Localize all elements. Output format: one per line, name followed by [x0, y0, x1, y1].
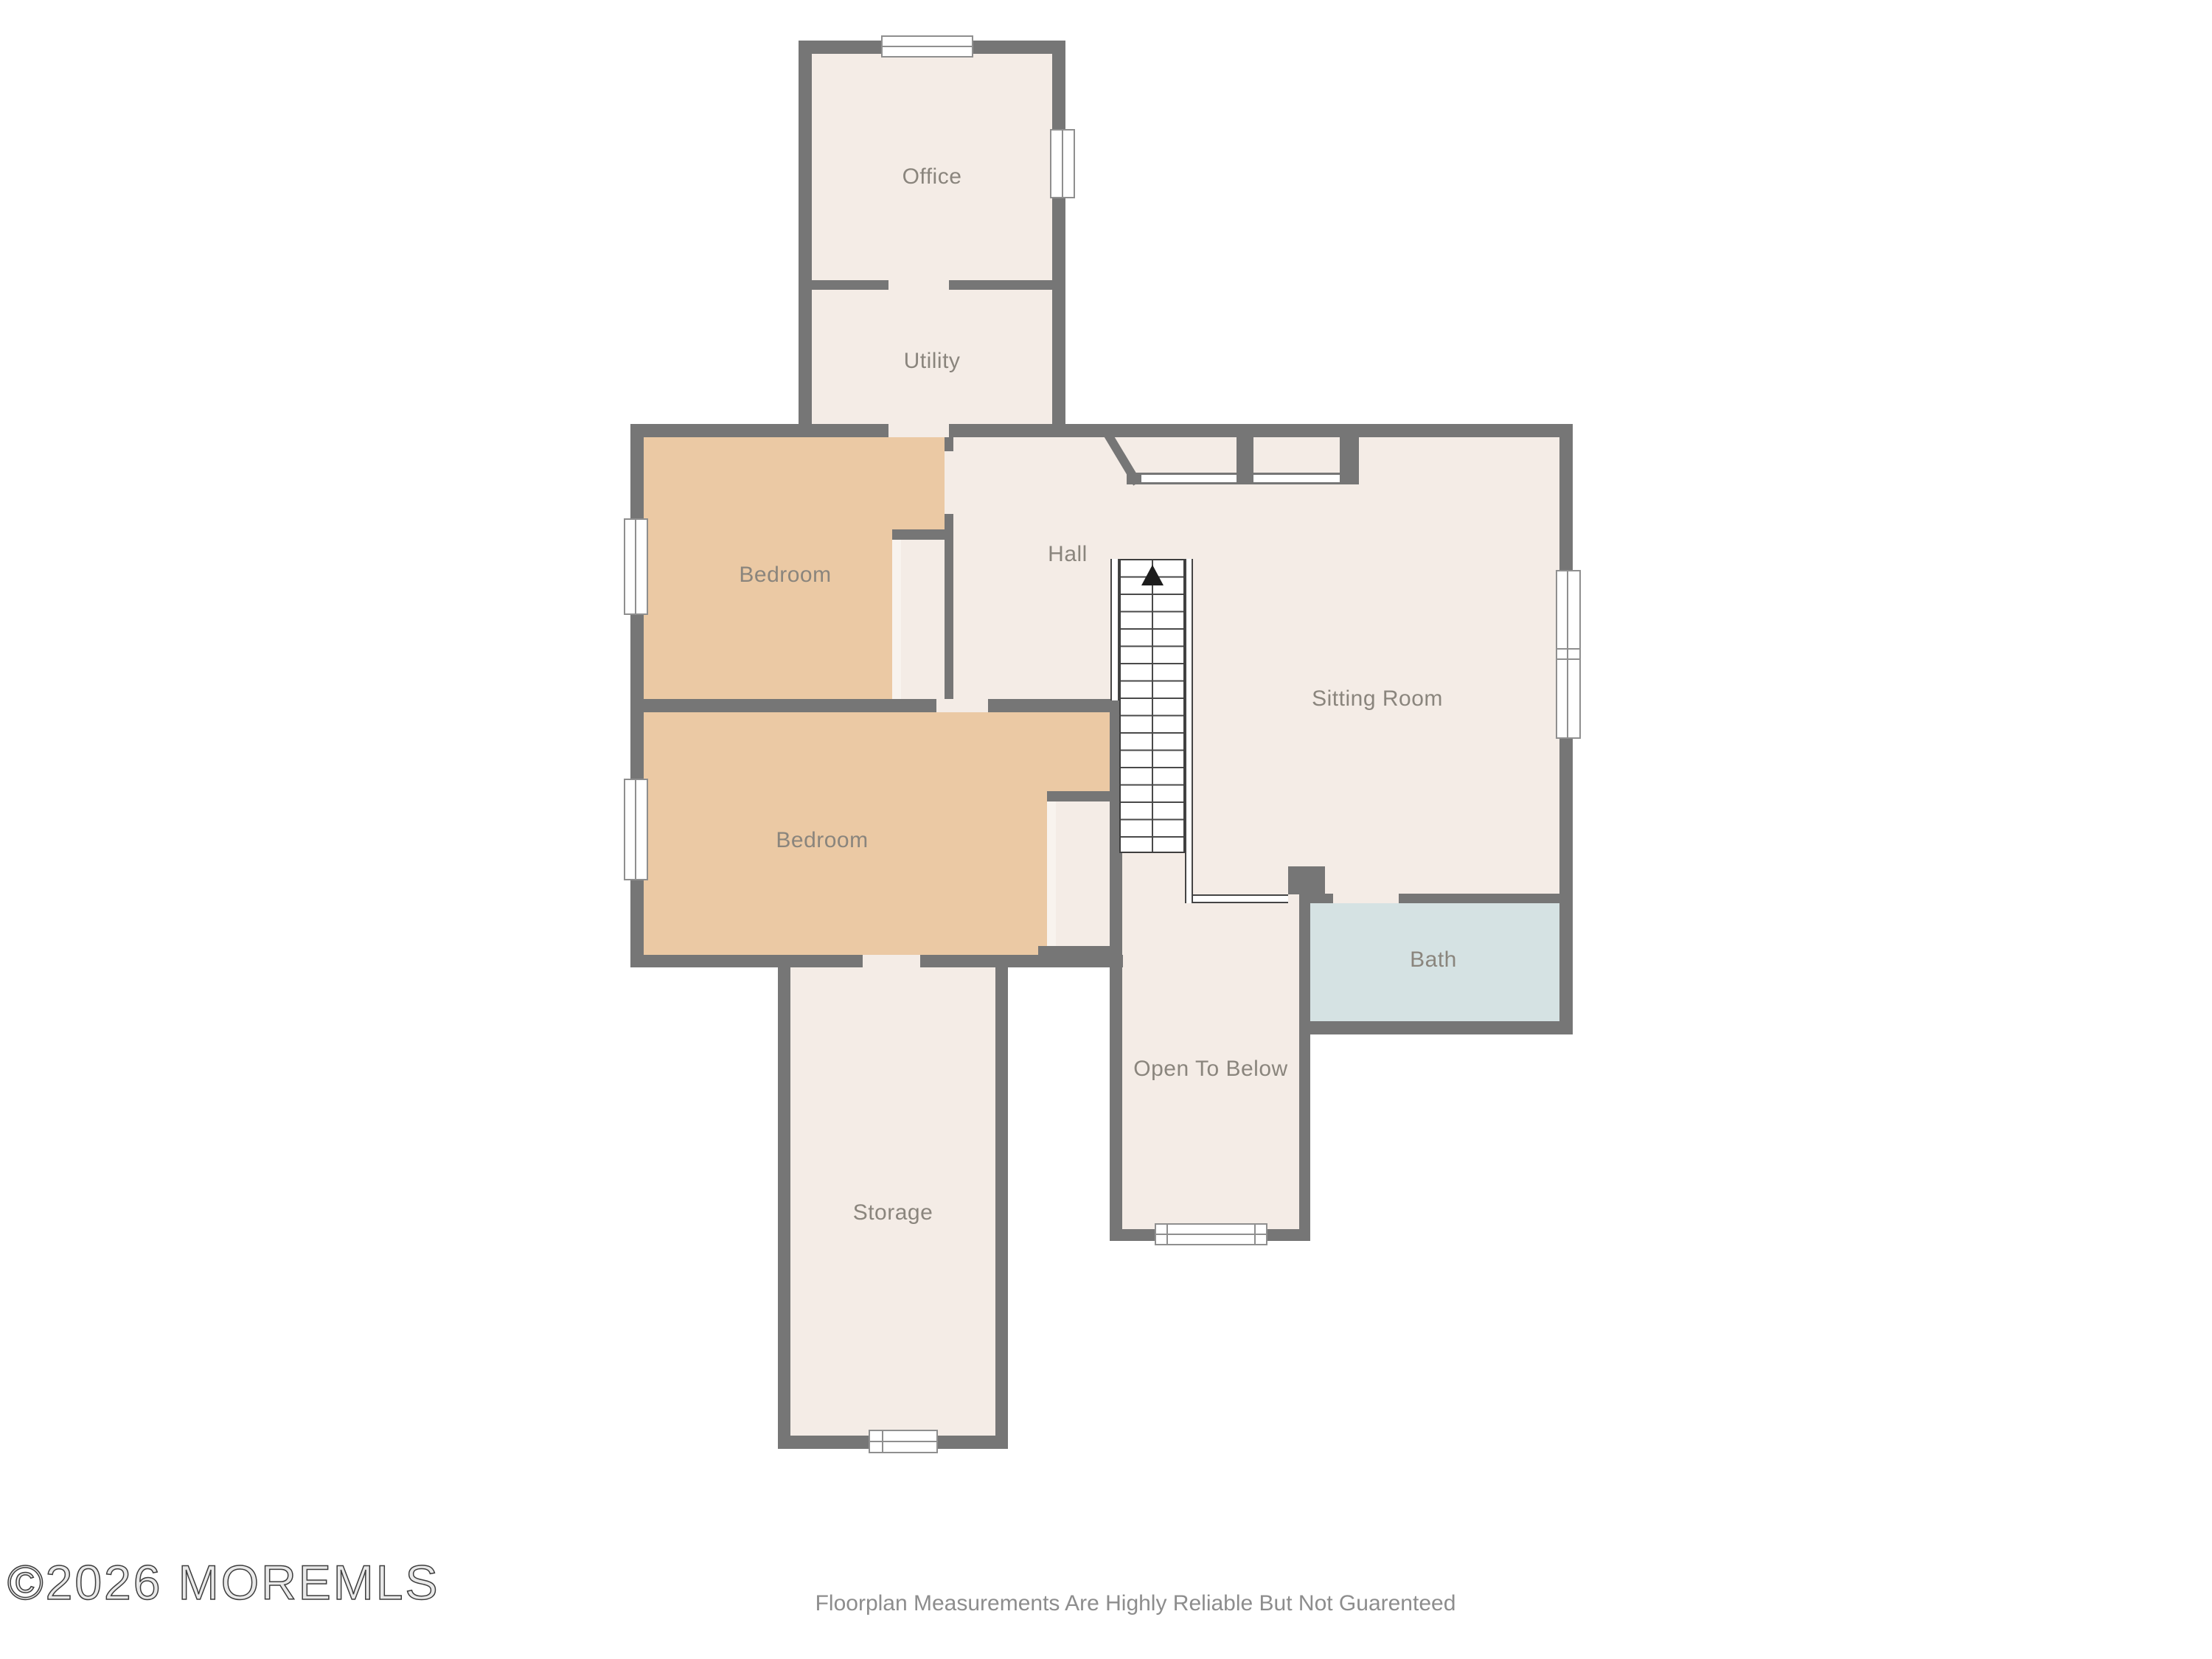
wall-bath-bottom	[1299, 1021, 1573, 1034]
window-frame-line	[635, 520, 636, 613]
half-wall-opening-left	[1141, 473, 1237, 484]
wall-closet1-top	[892, 529, 953, 540]
wall-bedroom1-hall-b	[945, 514, 953, 699]
bedroom1-door-opening	[945, 451, 953, 514]
room-label-bedroom1: Bedroom	[739, 563, 831, 588]
window-frame-line	[1156, 1234, 1266, 1235]
stair-direction-line	[1152, 560, 1153, 852]
wall-office-right-b	[1052, 198, 1065, 437]
bedroom2-nook-floor	[1047, 712, 1110, 791]
wall-sill-pier	[1237, 437, 1253, 484]
closet2-floor	[1056, 801, 1110, 946]
room-label-utility: Utility	[904, 349, 961, 374]
room-label-sitting-room: Sitting Room	[1312, 686, 1443, 712]
wall-bedroom1-hall-a	[945, 437, 953, 451]
wall-office-utility-divider-b	[949, 280, 1052, 290]
stair-left-rail	[1110, 559, 1119, 700]
wall-office-left	[799, 41, 812, 437]
window-bedroom2	[624, 779, 648, 880]
window-frame-line	[1062, 131, 1063, 197]
wall-open-to-below-right	[1299, 894, 1310, 1241]
closet1-floor	[901, 540, 945, 699]
stair-right-rail	[1185, 559, 1193, 903]
room-label-open-to-below: Open To Below	[1133, 1057, 1287, 1082]
wall-storage-bottom-a	[778, 1436, 869, 1449]
room-label-bedroom2: Bedroom	[776, 828, 868, 853]
stair-up-arrow-icon	[1141, 565, 1164, 585]
wall-bedroom-divider-b	[988, 699, 1119, 712]
window-office-right	[1050, 129, 1075, 198]
office-utility-floor	[812, 54, 1052, 437]
wall-storage-left	[778, 967, 790, 1449]
wall-main-left-b	[630, 613, 644, 780]
wall-landing-pier	[1288, 866, 1325, 894]
room-label-hall: Hall	[1048, 542, 1088, 567]
bedroom2-door-opening	[936, 699, 988, 712]
wall-open-to-below-bottom-b	[1267, 1229, 1310, 1241]
wall-bedroom-divider-a	[630, 699, 936, 712]
staircase	[1119, 559, 1185, 853]
disclaimer-text: Floorplan Measurements Are Highly Reliab…	[811, 1591, 1460, 1616]
wall-storage-right	[995, 967, 1008, 1449]
window-frame-line	[1254, 1225, 1256, 1244]
window-open-to-below	[1155, 1223, 1267, 1245]
room-label-bath: Bath	[1410, 947, 1457, 973]
wall-sill-cap-right	[1340, 437, 1359, 484]
wall-main-top-a	[630, 424, 888, 437]
wall-main-bottom-b	[920, 955, 1123, 967]
window-bedroom1	[624, 518, 648, 615]
window-storage	[869, 1430, 938, 1453]
landing-railing	[1193, 894, 1288, 903]
window-frame-line	[1557, 648, 1579, 650]
window-frame-line	[883, 46, 972, 47]
wall-main-right-a	[1559, 424, 1573, 571]
window-frame-line	[870, 1441, 936, 1442]
half-wall-opening-right	[1253, 473, 1340, 484]
window-frame-line	[1557, 658, 1579, 660]
floorplan-canvas: Office Utility Bedroom Hall Sitting Room…	[0, 0, 2212, 1659]
wall-bath-top-a	[1310, 894, 1333, 903]
window-frame-line	[1567, 571, 1568, 737]
window-frame-line	[1166, 1225, 1168, 1244]
wall-main-bottom-a	[630, 955, 863, 967]
wall-office-top-a	[799, 41, 881, 54]
wall-main-left-c	[630, 879, 644, 967]
wall-main-right-b	[1559, 737, 1573, 1034]
wall-closet2-bottom	[1038, 946, 1119, 955]
wall-office-right-a	[1052, 41, 1065, 129]
window-sitting-room	[1556, 570, 1581, 739]
wall-storage-bottom-b	[938, 1436, 1008, 1449]
bath-door-opening	[1333, 894, 1399, 903]
closet1-door-opening	[892, 540, 901, 699]
window-frame-line	[882, 1431, 883, 1452]
wall-main-top-b	[949, 424, 1573, 437]
closet2-door-opening	[1047, 801, 1056, 946]
wall-closet2-top	[1047, 791, 1119, 801]
wall-open-to-below-bottom-a	[1110, 1229, 1155, 1241]
wall-office-utility-divider-a	[812, 280, 888, 290]
wall-main-left-a	[630, 424, 644, 520]
mls-watermark: ©2026 MOREMLS	[7, 1554, 440, 1610]
storage-door-opening	[863, 955, 920, 967]
room-label-storage: Storage	[853, 1200, 933, 1225]
window-frame-line	[635, 780, 636, 879]
room-label-office: Office	[902, 164, 962, 189]
wall-bath-top-b	[1399, 894, 1573, 903]
window-office-top	[881, 35, 973, 58]
